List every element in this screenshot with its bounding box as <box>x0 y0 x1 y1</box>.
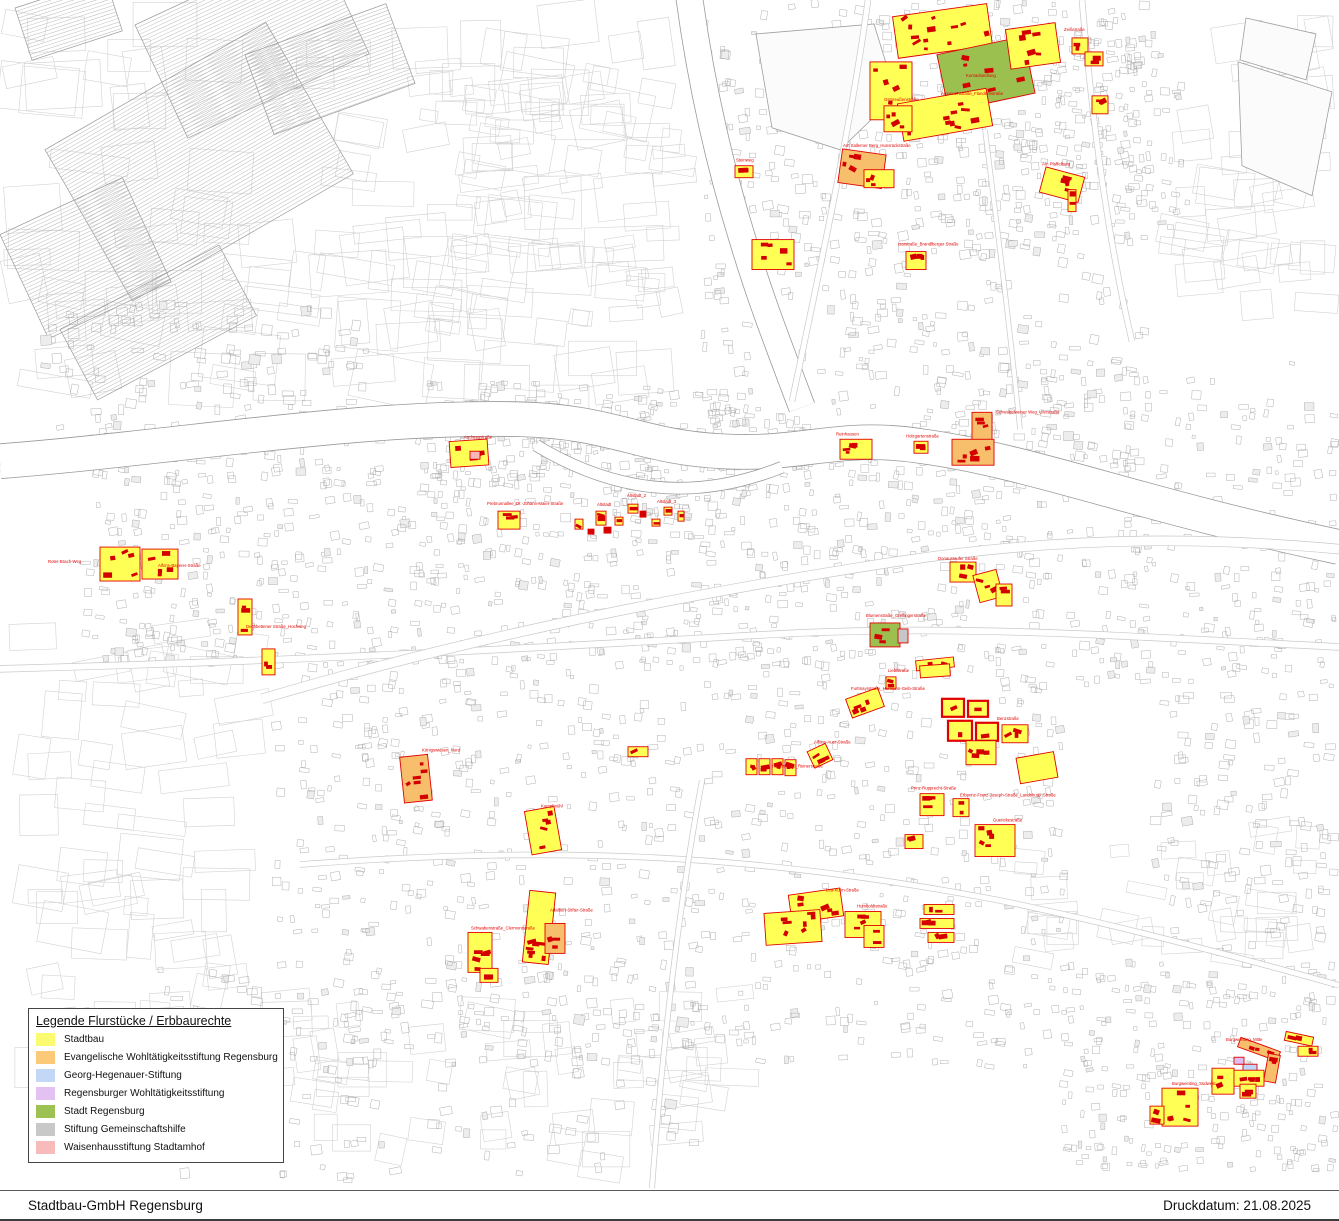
parcel-cluster-w3 <box>238 599 252 635</box>
parcel-cluster-c1 <box>498 511 520 529</box>
map-label: Andreasstraße <box>464 434 493 439</box>
legend-item-label: Stadtbau <box>64 1034 104 1045</box>
map-label: Holzgartenstraße <box>906 433 939 438</box>
parcel-cluster-q4 <box>545 923 565 953</box>
parcel-cluster-u3 <box>928 932 954 942</box>
parcel-cluster-g20 <box>905 835 923 849</box>
map-label: Kumpfmühl <box>541 804 563 809</box>
parcel-cluster-r3 <box>952 439 994 465</box>
map-label: Isarstraße_Brandlberger Straße <box>898 242 959 247</box>
map-label: Königswiesen_Nord <box>422 748 461 753</box>
map-label: Benzstraße <box>997 716 1020 721</box>
parcel-cluster-s6 <box>752 240 794 270</box>
map-label: Altstadt_3 <box>657 499 677 504</box>
footer-company: Stadtbau-GmbH Regensburg <box>28 1198 203 1213</box>
parcel-cluster-g19 <box>975 825 1015 857</box>
parcel-cluster-r5 <box>950 562 976 582</box>
map-label: Humboldtstraße <box>857 903 888 908</box>
map-label: Steinweg <box>736 158 754 163</box>
parcel-cluster-s7 <box>735 166 753 178</box>
parcel-cluster-g17 <box>920 794 944 816</box>
parcel-cluster-g15 <box>966 741 996 765</box>
footer-print-date: Druckdatum: 21.08.2025 <box>1163 1198 1311 1213</box>
parcel-cluster-g2 <box>746 759 757 775</box>
parcel-cluster-d9 <box>604 527 611 533</box>
parcel-cluster-d4 <box>628 504 638 513</box>
parcel-cluster-k7 <box>884 106 912 132</box>
legend-item: Stadtbau <box>36 1033 276 1046</box>
parcel-cluster-q2 <box>524 806 561 854</box>
parcel-cluster-s2 <box>864 170 894 188</box>
legend-item-label: Stiftung Gemeinschaftshilfe <box>64 1124 186 1135</box>
map-label: Roter-Brach-Weg <box>48 559 82 564</box>
parcel-cluster-w1 <box>100 547 140 581</box>
map-label: Schwabenstraße_Clermontstraße <box>471 925 536 930</box>
legend-item: Regensburger Wohltätigkeitsstiftung <box>36 1087 276 1100</box>
legend-item-label: Georg-Hegenauer-Stiftung <box>64 1070 182 1081</box>
legend-color-swatch <box>36 1141 55 1154</box>
legend-item: Evangelische Wohltätigkeitsstiftung Rege… <box>36 1051 276 1064</box>
parcel-cluster-q5 <box>468 932 492 972</box>
legend-color-swatch <box>36 1033 55 1046</box>
map-label: Argonnenstraße_Flandernstraße <box>941 91 1004 96</box>
parcel-cluster-r4 <box>914 441 928 453</box>
parcel-cluster-s3 <box>1039 167 1084 202</box>
legend-item: Stadt Regensburg <box>36 1105 276 1118</box>
map-label: Burgweinting_Südwest <box>1172 1081 1216 1086</box>
parcel-cluster-g3 <box>759 759 770 775</box>
parcel-cluster-q6 <box>480 968 498 982</box>
legend-item: Georg-Hegenauer-Stiftung <box>36 1069 276 1082</box>
parcel-cluster-q1 <box>400 754 433 803</box>
footer-bar: Stadtbau-GmbH Regensburg Druckdatum: 21.… <box>0 1190 1339 1219</box>
parcel-cluster-g11 <box>968 701 988 717</box>
legend-item-label: Stadt Regensburg <box>64 1106 145 1117</box>
parcel-cluster-k4 <box>1005 23 1060 69</box>
map-label: Alfons-Bayerer-Straße <box>158 563 201 568</box>
map-label: Lea-Kuhn-Straße <box>826 888 859 893</box>
parcel-cluster-g18 <box>953 799 969 817</box>
map-label: Prinz-Rupprecht-Straße <box>911 786 957 791</box>
map-label: Guerickestraße <box>993 818 1023 823</box>
legend-color-swatch <box>36 1123 55 1136</box>
map-label: Schwabelweiser Weg_Uferstraße <box>996 409 1060 414</box>
parcel-cluster-d3 <box>615 517 623 525</box>
legend-color-swatch <box>36 1051 55 1064</box>
legend-item-label: Evangelische Wohltätigkeitsstiftung Rege… <box>64 1052 278 1063</box>
map-label: Alfons-Auer-Straße <box>814 740 851 745</box>
legend-color-swatch <box>36 1069 55 1082</box>
map-label: Burgweinting_Mitte <box>1226 1037 1263 1042</box>
map-label: Am Pfaffelberg <box>1042 162 1071 167</box>
parcel-cluster-g1 <box>628 747 648 757</box>
parcel-cluster-e2 <box>898 629 908 643</box>
parcel-cluster-r7 <box>996 584 1012 606</box>
print-page: KonradsiedlungZeißstraßeArgonnenstraße_F… <box>0 0 1339 1221</box>
parcel-cluster-b8 <box>1162 1088 1198 1126</box>
parcel-cluster-w4 <box>262 649 275 675</box>
parcel-cluster-g10 <box>942 699 964 717</box>
map-label: Lieblstraße <box>888 668 910 673</box>
legend-item: Stiftung Gemeinschaftshilfe <box>36 1123 276 1136</box>
map-label: Adalbert-Stifter-Straße <box>550 907 593 912</box>
legend-color-swatch <box>36 1105 55 1118</box>
map-label: Altstadt_2 <box>627 493 647 498</box>
parcel-cluster-b2 <box>1264 1053 1281 1083</box>
legend-box: Legende Flurstücke / Erbbaurechte Stadtb… <box>28 1008 284 1163</box>
parcel-cluster-g14 <box>1002 725 1028 743</box>
map-label: Erbprinz-Franz-Joseph-Straße_Landshuter … <box>960 793 1056 798</box>
parcel-cluster-k8 <box>1085 52 1103 66</box>
map-label: Prebrunnallee_Dr.-Johann-Maier-Straße <box>487 501 564 506</box>
parcel-cluster-b11 <box>1240 1084 1256 1098</box>
legend-item-label: Regensburger Wohltätigkeitsstiftung <box>64 1088 224 1099</box>
map-label: Donaustaufer Straße <box>938 556 978 561</box>
parcel-cluster-d10 <box>588 529 594 534</box>
parcel-cluster-h4 <box>864 925 884 947</box>
parcel-cluster-a1 <box>449 439 489 468</box>
parcel-cluster-b7 <box>1298 1046 1318 1056</box>
parcel-cluster-u2 <box>920 918 954 928</box>
map-label: Dechbettener Straße_Hochweg <box>246 624 307 629</box>
map-label: Furtmayrstraße_Hermann-Geib-Straße <box>851 686 926 691</box>
map-label: Am Sallerner Berg_Hunsrückstraße <box>843 143 911 148</box>
parcel-cluster-b4 <box>1234 1057 1244 1064</box>
map-label: Reinhausen <box>836 431 859 436</box>
parcel-cluster-b6 <box>1284 1031 1313 1046</box>
parcel-cluster-e1 <box>870 623 900 647</box>
legend-title: Legende Flurstücke / Erbbaurechte <box>36 1014 276 1028</box>
legend-items: Stadtbau Evangelische Wohltätigkeitsstif… <box>36 1033 276 1154</box>
legend-color-swatch <box>36 1087 55 1100</box>
parcel-cluster-g16 <box>1016 752 1058 784</box>
parcel-cluster-r1 <box>840 439 872 459</box>
parcel-cluster-a2 <box>470 451 480 459</box>
map-label: Ostpreußenstraße <box>884 97 919 102</box>
parcel-cluster-g8 <box>846 688 885 718</box>
parcel-cluster-s5 <box>906 252 926 270</box>
parcel-cluster-u1 <box>924 904 954 914</box>
map-label: Hayerstraße_Reinerstraße <box>772 764 823 769</box>
parcel-cluster-s4 <box>1068 190 1076 212</box>
legend-item-label: Waisenhausstiftung Stadtamhof <box>64 1142 205 1153</box>
ownership-parcels <box>100 3 1318 1126</box>
parcel-cluster-r2 <box>972 412 992 440</box>
parcel-cluster-g7 <box>920 664 951 678</box>
map-label: Blumenstraße_Greflingerstraße <box>866 613 927 618</box>
legend-item: Waisenhausstiftung Stadtamhof <box>36 1141 276 1154</box>
parcel-cluster-b9 <box>1150 1106 1164 1124</box>
map-label: Konradsiedlung <box>966 73 996 78</box>
parcel-cluster-g12 <box>948 721 972 741</box>
parcel-cluster-d8 <box>678 511 684 521</box>
map-label: Zeißstraße <box>1064 27 1085 32</box>
parcel-cluster-d7 <box>664 507 672 515</box>
parcel-cluster-d1 <box>575 519 583 529</box>
parcel-cluster-k9 <box>1092 96 1108 114</box>
parcel-cluster-d2 <box>596 511 606 525</box>
parcel-cluster-h2 <box>764 910 822 946</box>
map-label: Altstadt <box>597 502 612 507</box>
parcel-cluster-g13 <box>976 723 998 741</box>
parcel-cluster-d5 <box>640 511 646 517</box>
parcel-cluster-d6 <box>652 519 660 526</box>
